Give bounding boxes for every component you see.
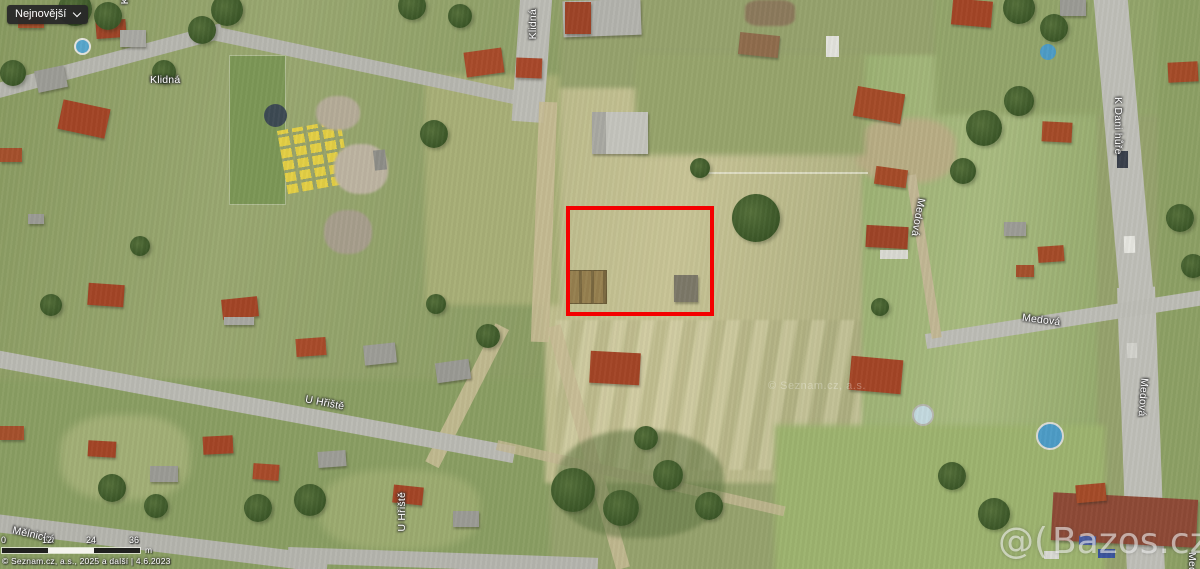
scale-tick-24: 24	[86, 535, 96, 545]
map-attribution: © Seznam.cz, a.s., 2025 a další | 4.6.20…	[2, 556, 171, 566]
sort-dropdown-label: Nejnovější	[15, 8, 66, 20]
scale-bar-segments	[2, 548, 140, 553]
street-label-klidna-clipped: Klidná	[119, 0, 131, 4]
scale-tick-12: 12	[42, 535, 52, 545]
street-label-klidna-vertical: Klidná	[527, 9, 539, 39]
aerial-map[interactable]: © Seznam.cz, a.s. Klidná Klidná Klidná K…	[0, 0, 1200, 569]
street-label-k-dani-hure: K Dani hůře	[1112, 97, 1124, 155]
bazos-text: Bazos.cz	[1052, 521, 1200, 562]
sort-dropdown[interactable]: Nejnovější	[7, 5, 88, 24]
scale-tick-0: 0	[1, 535, 6, 545]
scale-tick-36: 36	[129, 535, 139, 545]
street-label-klidna: Klidná	[150, 74, 180, 86]
street-label-u-hriste-vertical: U Hřiště	[396, 492, 408, 532]
bazos-watermark: @(Bazos.cz	[998, 522, 1200, 562]
seznam-center-watermark: © Seznam.cz, a.s.	[768, 380, 866, 392]
plot-highlight-rectangle	[566, 206, 714, 316]
bazos-logo-mark: @(	[998, 521, 1048, 562]
chevron-down-icon	[73, 8, 81, 16]
scale-unit: m	[145, 545, 152, 555]
